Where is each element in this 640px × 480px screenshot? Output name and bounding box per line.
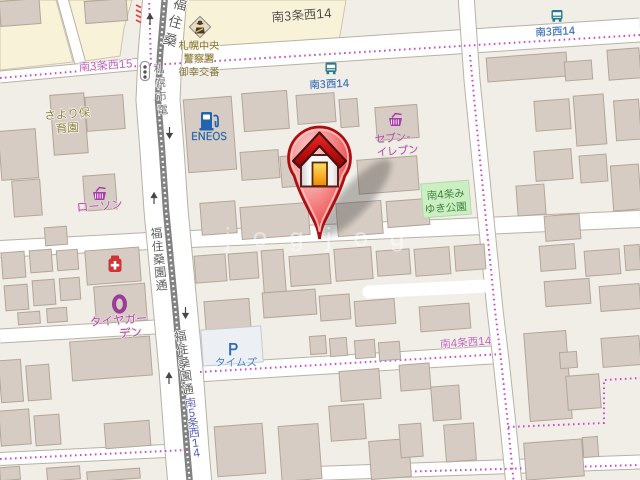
svg-text:jogjog: jogjog — [224, 222, 426, 252]
